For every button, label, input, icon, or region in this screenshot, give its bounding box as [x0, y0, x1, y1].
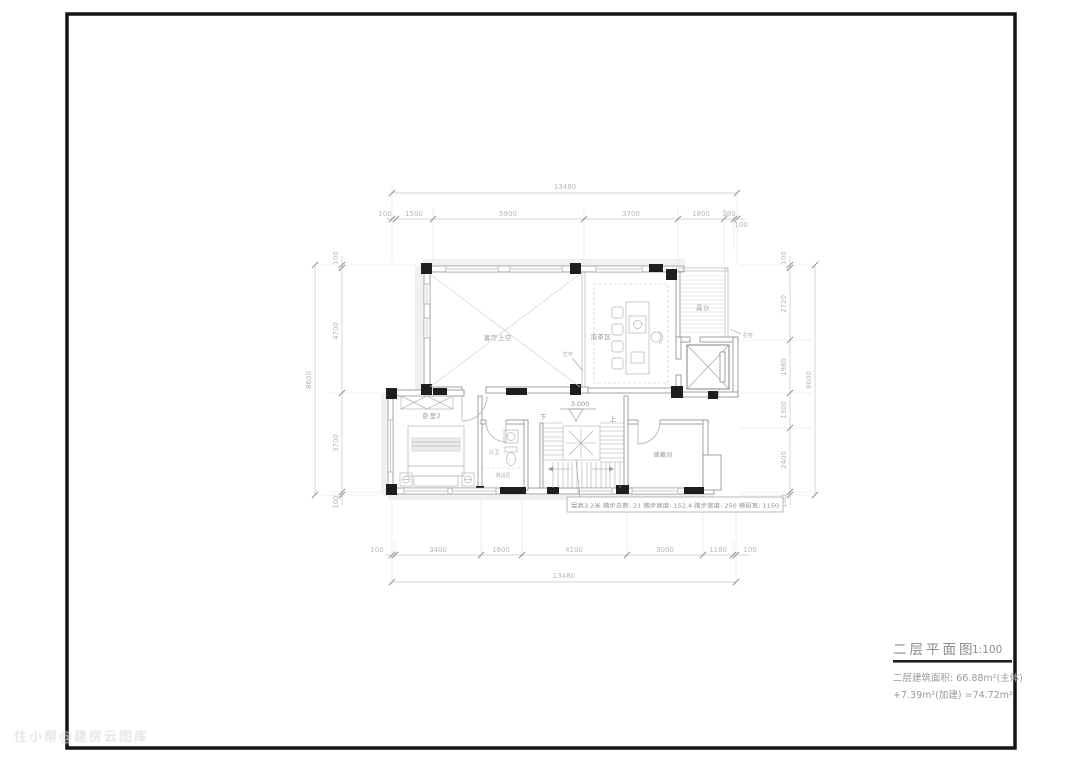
dim-right-seg: 2400	[780, 451, 788, 469]
floor-plan-canvas: 13480 100 1500 5900 3700 1800 380 100 10…	[0, 0, 1080, 764]
stair-note-text: 层高3.2米 踏步总数: 21 踏步高度: 152.4 踏步宽度: 250 梯段…	[571, 502, 779, 510]
dim-right-seg: 1300	[780, 401, 788, 419]
bedroom2: 卧室2	[400, 396, 487, 486]
dim-left-seg: 100	[332, 495, 340, 508]
dim-bottom-seg: 100	[743, 546, 756, 554]
watermark: 住小帮@建房云图库	[14, 726, 149, 745]
dim-left-seg: 4700	[332, 322, 340, 340]
title-block: 二层平面图 1:100 二层建筑面积: 66.88m²(主体) +7.39m²(…	[893, 642, 1023, 701]
dim-left-seg: 3700	[332, 434, 340, 452]
bedroom2-label: 卧室2	[423, 411, 442, 420]
dim-top-seg: 1500	[405, 210, 423, 218]
dim-bottom-seg: 100	[370, 546, 383, 554]
terrace: 露台 栏杆	[678, 276, 753, 339]
storage: 储藏间	[638, 422, 673, 459]
bathroom: 公卫 淋浴区	[482, 422, 524, 479]
living-void-label: 客厅上空	[484, 333, 512, 342]
windows	[388, 266, 678, 494]
area-line2: +7.39m²(加建) =74.72m²	[893, 689, 1013, 701]
railing-label: 栏杆	[563, 351, 573, 358]
dim-right-seg: 2720	[780, 295, 788, 313]
dim-top-seg: 100	[378, 210, 391, 218]
dim-top-total: 13480	[554, 183, 576, 191]
dim-bottom-seg: 3000	[656, 546, 674, 554]
railing-label: 栏杆	[743, 332, 753, 339]
dim-top-seg: 1800	[692, 210, 710, 218]
stair-note: 层高3.2米 踏步总数: 21 踏步高度: 152.4 踏步宽度: 250 梯段…	[567, 497, 783, 512]
dim-top-seg: 100	[734, 221, 747, 229]
tea-area-label: 泡茶区	[591, 332, 612, 341]
dim-left-total: 8600	[305, 371, 313, 389]
elevation-label: 3.000	[571, 400, 590, 408]
dimensions-top: 13480 100 1500 5900 3700 1800 380 100	[378, 183, 747, 263]
storage-label: 储藏间	[653, 451, 673, 459]
sheet-border	[67, 14, 1015, 748]
dim-right-seg: 100	[780, 251, 788, 264]
bathroom-label: 公卫	[488, 449, 500, 456]
dimensions-left: 100 4700 3700 100 8600	[305, 251, 422, 508]
dim-top-seg: 380	[722, 210, 735, 218]
dim-bottom-seg: 4100	[565, 546, 583, 554]
dim-bottom-seg: 1180	[709, 546, 727, 554]
stairs-down-label: 下	[540, 413, 547, 421]
elevator	[687, 345, 729, 389]
exterior-shadow	[381, 259, 714, 500]
tea-area: 泡茶区	[591, 284, 669, 383]
dim-bottom-total: 13480	[553, 572, 575, 580]
drawing-sheet: 13480 100 1500 5900 3700 1800 380 100 10…	[0, 0, 1080, 764]
dim-right-seg: 1980	[780, 358, 788, 376]
title-underline	[893, 660, 1012, 663]
dim-right-total: 8600	[805, 371, 813, 389]
living-room-void: 客厅上空 栏杆	[430, 274, 583, 387]
drawing-scale: 1:100	[972, 644, 1002, 656]
area-line1: 二层建筑面积: 66.88m²(主体)	[893, 672, 1023, 684]
drawing-title: 二层平面图	[893, 642, 976, 658]
stairs-up-label: 上	[610, 414, 617, 423]
dim-top-seg: 3700	[622, 210, 640, 218]
dim-bottom-seg: 3400	[429, 546, 447, 554]
terrace-label: 露台	[696, 303, 710, 312]
shower-label: 淋浴区	[495, 472, 510, 479]
dim-top-seg: 5900	[499, 210, 517, 218]
dim-bottom-seg: 1600	[492, 546, 510, 554]
dimensions-right: 100 2720 1980 1300 2400 100 8600	[740, 251, 818, 507]
stairs: 3.000 下 上	[540, 400, 624, 497]
dim-left-seg: 100	[332, 251, 340, 264]
